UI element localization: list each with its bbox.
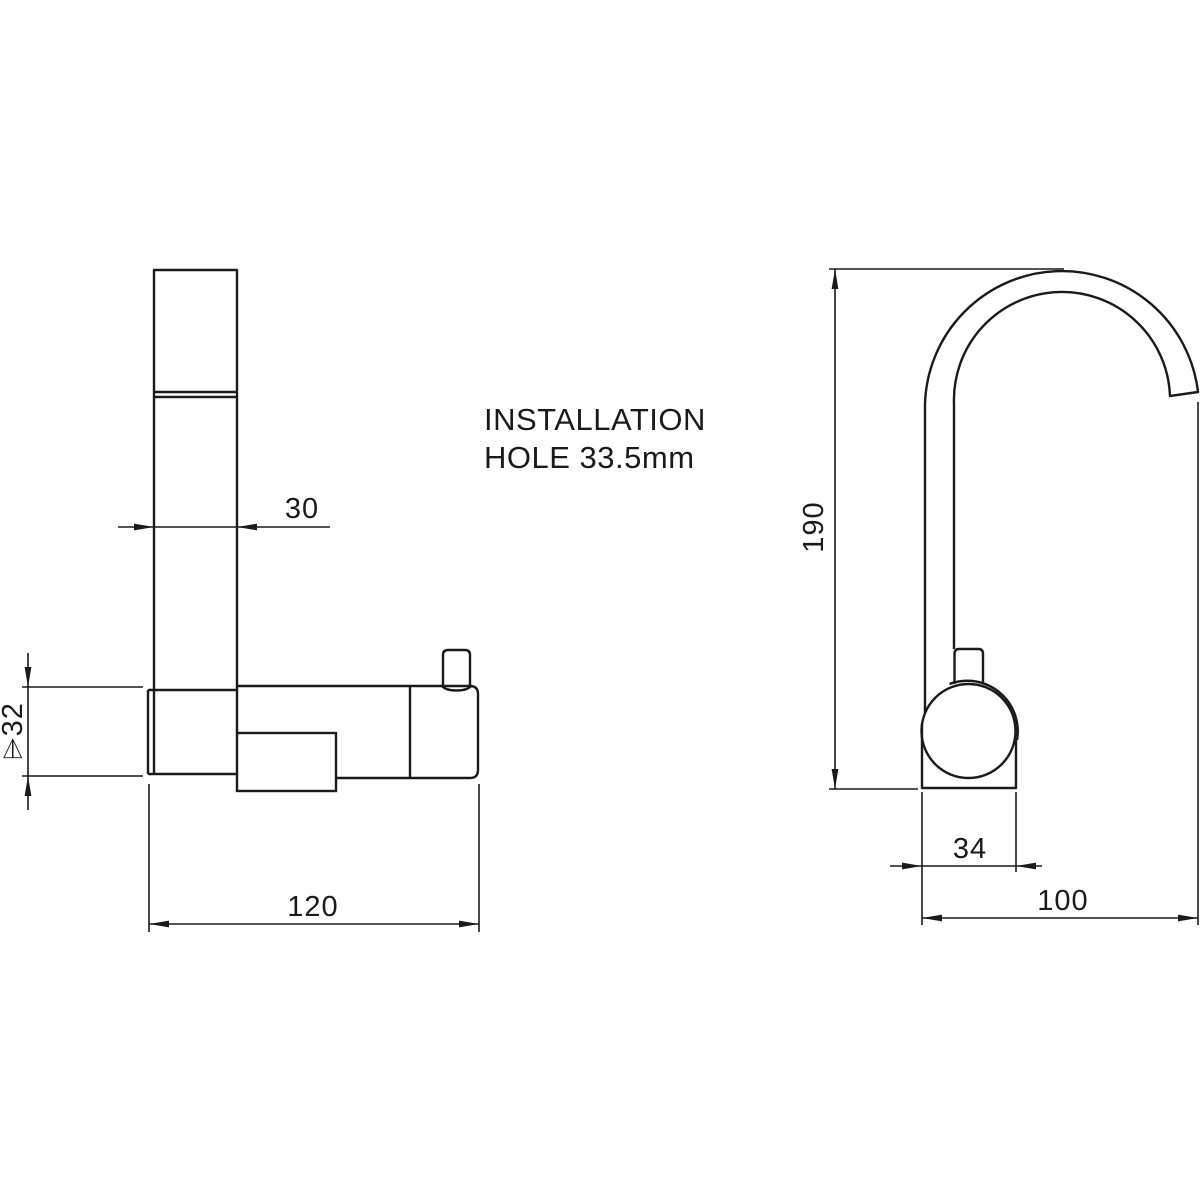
arrowhead — [459, 921, 479, 928]
joint-circle — [922, 684, 1016, 778]
dim-label-190: 190 — [798, 501, 830, 552]
side-view: 30 ⌲32 120 — [0, 270, 479, 932]
dim-base-width: 34 — [890, 792, 1042, 925]
gooseneck-spout — [925, 271, 1198, 713]
front-view: 190 34 100 — [798, 269, 1198, 925]
spout-tube — [154, 270, 237, 774]
technical-drawing: 30 ⌲32 120 INSTALLATION HOLE 33.5mm — [0, 0, 1200, 1200]
installation-note: INSTALLATION HOLE 33.5mm — [484, 402, 706, 475]
arrowhead — [922, 915, 942, 922]
dim-label-diameter-32: ⌲32 — [0, 702, 29, 760]
installation-note-line1: INSTALLATION — [484, 402, 706, 437]
arrowhead — [832, 269, 839, 289]
dim-body-length: 120 — [149, 784, 479, 932]
handle-lever — [955, 649, 984, 684]
knob — [443, 650, 470, 691]
spout-socket — [148, 690, 237, 774]
arrowhead — [25, 776, 32, 796]
handle-block — [237, 733, 336, 791]
arrowhead — [149, 921, 169, 928]
dim-socket-diameter: ⌲32 — [0, 653, 143, 810]
arrowhead — [902, 863, 922, 870]
arrowhead — [832, 769, 839, 789]
dim-label-30: 30 — [285, 493, 319, 525]
arrowhead — [134, 524, 154, 531]
arrowhead — [1016, 863, 1036, 870]
arrowhead — [1178, 915, 1198, 922]
dim-label-100: 100 — [1037, 885, 1088, 917]
drawing-canvas: 30 ⌲32 120 INSTALLATION HOLE 33.5mm — [0, 0, 1200, 1200]
installation-note-line2: HOLE 33.5mm — [484, 440, 695, 475]
dim-spout-width: 30 — [118, 493, 330, 530]
arrowhead — [25, 667, 32, 687]
dim-label-34: 34 — [953, 833, 987, 865]
arrowhead — [237, 524, 257, 531]
dim-label-120: 120 — [287, 891, 338, 923]
